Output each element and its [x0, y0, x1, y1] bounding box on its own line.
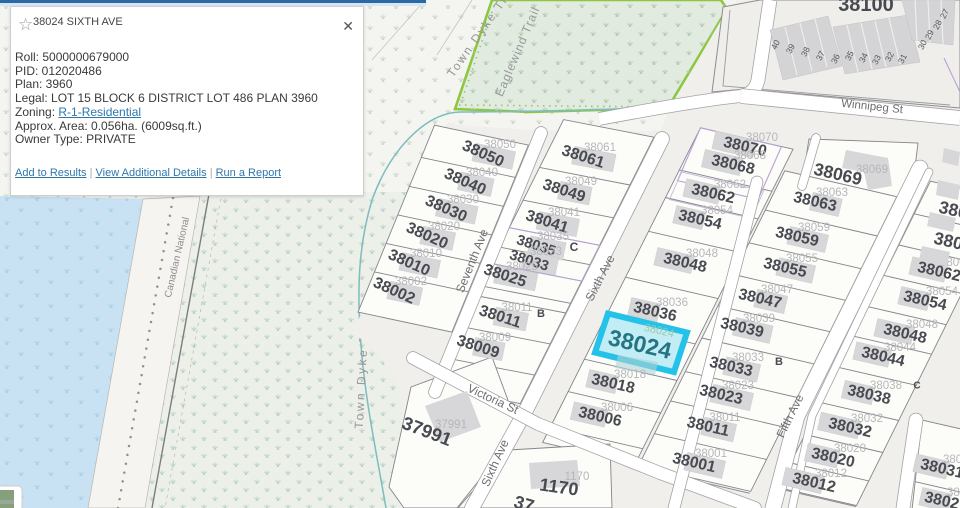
svg-text:C: C — [913, 381, 920, 392]
svg-text:B: B — [537, 308, 545, 320]
svg-text:38100: 38100 — [838, 0, 894, 16]
svg-text:C: C — [570, 240, 579, 254]
svg-text:B: B — [775, 356, 783, 368]
